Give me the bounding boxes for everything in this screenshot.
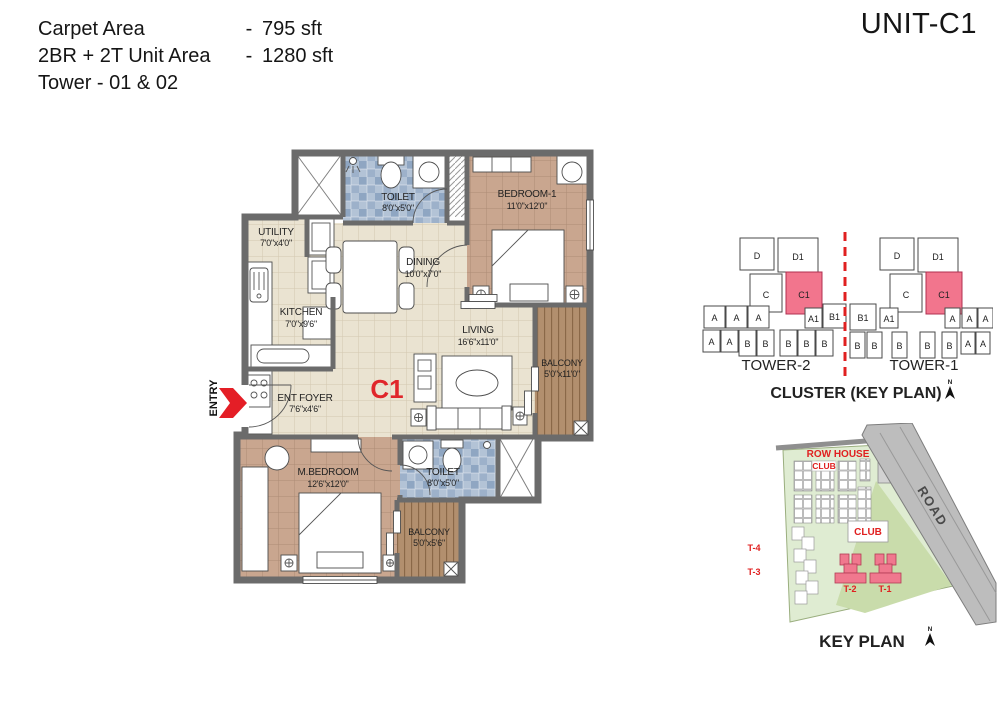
sofa [436, 408, 502, 429]
carpet-area-value: 795 sft [262, 16, 322, 43]
dresser [311, 439, 361, 452]
tower-1-diagram: D D1 C C1 B1 A1 A A A B B B B B A A [850, 238, 993, 358]
cluster-title: CLUSTER (KEY PLAN) [770, 385, 941, 402]
kitchen-dims: 7'0"x9'6" [285, 319, 317, 329]
ent-foyer-name: ENT FOYER [277, 393, 332, 404]
north-arrow-icon: N [945, 379, 955, 399]
unit-label: D [894, 251, 901, 261]
unit-plan-page: { "header": { "unit_title": "UNIT-C1", "… [0, 0, 1000, 707]
t3-label: T-3 [747, 567, 760, 577]
toilet2-name: TOILET [426, 467, 460, 478]
unit-label: A [708, 337, 714, 347]
unit-label: A [982, 314, 988, 324]
unit-label: B [946, 341, 952, 351]
unit-area-value: 1280 sft [262, 43, 333, 70]
unit-label: A1 [808, 314, 819, 324]
site-key-plan: ROAD ROW HOUSE CLUB CLUB T-4 T-3 T-2 T-1… [740, 423, 1000, 673]
t4-label: T-4 [747, 543, 760, 553]
dining-dims: 10'0"x7'0" [405, 269, 442, 279]
unit-label-c1: C1 [798, 290, 810, 300]
unit-label: B [762, 339, 768, 349]
stove [248, 375, 270, 407]
unit-label: A [711, 313, 717, 323]
toilet1-dims: 8'0"x5'0" [382, 203, 414, 213]
tv-unit [414, 354, 436, 402]
club-center-label: CLUB [854, 527, 882, 538]
unit-label: D1 [792, 252, 804, 262]
utility-name: UTILITY [258, 227, 294, 238]
unit-label: B1 [857, 313, 868, 323]
bed-master-head [317, 552, 363, 568]
balcony-bottom-dims: 5'0"x5'6" [413, 538, 445, 548]
hatch-strip [447, 153, 467, 217]
bedroom1-dims: 11'0"x12'0" [507, 201, 548, 211]
dining-table [343, 241, 397, 313]
wc-tank [441, 440, 463, 448]
foyer-counter [251, 345, 331, 367]
unit-label: D1 [932, 252, 944, 262]
unit-label: D [754, 251, 761, 261]
wardrobe [473, 157, 531, 172]
unit-label: B [924, 341, 930, 351]
kitchen-name: KITCHEN [280, 307, 323, 318]
unit-label: A [965, 339, 971, 349]
balcony-right-dims: 5'0"x11'0" [544, 369, 580, 379]
m-bedroom-name: M.BEDROOM [298, 467, 359, 478]
sliding-door [525, 391, 532, 415]
unit-label: B [821, 339, 827, 349]
club-top-label: CLUB [812, 461, 836, 471]
unit-label: B [896, 341, 902, 351]
sliding-door [532, 367, 539, 391]
carpet-area-row: Carpet Area - 795 sft [38, 16, 333, 43]
wc [381, 162, 401, 188]
sliding-door [394, 511, 401, 533]
toilet2-dims: 8'0"x5'0" [427, 478, 459, 488]
sliding-door [387, 533, 394, 555]
dining-name: DINING [406, 257, 440, 268]
unit-label: A [726, 337, 732, 347]
unit-label: A [966, 314, 972, 324]
toilet1-name: TOILET [381, 192, 415, 203]
unit-label: A1 [883, 314, 894, 324]
shower-icon [350, 158, 357, 165]
north-letter: N [928, 626, 933, 633]
bedroom1-name: BEDROOM-1 [498, 189, 557, 200]
unit-label: B [854, 341, 860, 351]
corner-table [265, 446, 289, 470]
balcony-right-name: BALCONY [541, 358, 583, 368]
unit-label: B [803, 339, 809, 349]
shower-icon [484, 442, 491, 449]
living-dims: 16'6"x11'0" [458, 337, 499, 347]
unit-label: A [949, 314, 955, 324]
tower-label: Tower - 01 & 02 [38, 70, 178, 97]
t2-label: T-2 [843, 584, 856, 594]
unit-label-c1: C1 [938, 290, 950, 300]
north-arrow-icon: N [925, 626, 935, 646]
unit-area-row: 2BR + 2T Unit Area - 1280 sft [38, 43, 333, 70]
unit-code-label: C1 [370, 374, 403, 404]
unit-label: B [871, 341, 877, 351]
area-info-block: Carpet Area - 795 sft 2BR + 2T Unit Area… [38, 16, 333, 97]
row-house-label: ROW HOUSE [807, 449, 870, 460]
entry-label: ENTRY [208, 370, 222, 426]
m-bedroom-dims: 12'6"x12'0" [307, 479, 348, 489]
unit-label: C [763, 290, 770, 300]
unit-label: B [744, 339, 750, 349]
tower-2-diagram: D D1 C C1 A A A A1 B1 A A B B B B B [703, 238, 846, 356]
dash: - [236, 16, 262, 43]
tower-1-label: TOWER-1 [890, 357, 959, 374]
chair [326, 247, 341, 273]
wardrobe [242, 467, 268, 571]
utility-dims: 7'0"x4'0" [260, 238, 292, 248]
bed-1-head [510, 284, 548, 301]
unit-label: A [733, 313, 739, 323]
tower-2-label: TOWER-2 [742, 357, 811, 374]
coffee-table [456, 370, 498, 396]
dash: - [236, 43, 262, 70]
floor-plan: TOILET 8'0"x5'0" BEDROOM-1 11'0"x12'0" U… [215, 145, 600, 625]
unit-area-label: 2BR + 2T Unit Area [38, 43, 236, 70]
tower-row: Tower - 01 & 02 [38, 70, 333, 97]
balcony-bottom-name: BALCONY [408, 527, 450, 537]
north-letter: N [948, 379, 953, 386]
unit-label: A [755, 313, 761, 323]
unit-label: C [903, 290, 910, 300]
sliding-door [461, 302, 495, 309]
carpet-area-label: Carpet Area [38, 16, 236, 43]
sliding-door [469, 295, 497, 302]
living-name: LIVING [462, 325, 494, 336]
chair [399, 283, 414, 309]
cluster-key-plan: D D1 C C1 A A A A1 B1 A A B B B B B D D1 [698, 230, 993, 415]
unit-label: B1 [829, 312, 840, 322]
key-plan-title: KEY PLAN [819, 632, 905, 651]
ent-foyer-dims: 7'6"x4'6" [289, 404, 321, 414]
t1-label: T-1 [878, 584, 891, 594]
page-title: UNIT-C1 [861, 8, 977, 41]
unit-label: B [785, 339, 791, 349]
unit-label: A [980, 339, 986, 349]
